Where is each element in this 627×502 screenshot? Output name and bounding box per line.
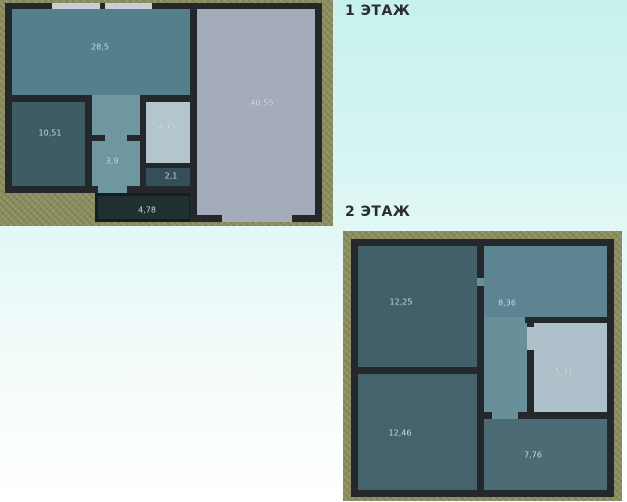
wall [527,350,534,412]
floor1-garage-door-opening [222,215,292,222]
floor2-room-7-76 [484,419,607,490]
window [52,3,100,9]
floor1-room-10-51 [12,102,85,186]
floor1-room-28-5 [12,9,190,95]
floor2-doorway [527,327,534,350]
floor2-room-12-46 [358,374,477,490]
door-jamb [92,135,105,141]
wall [140,95,146,190]
wall [85,95,92,193]
area-label: 10,51 [39,129,62,138]
floor1-room-3-9 [92,95,140,190]
area-label: 12,46 [389,429,412,438]
wall [351,490,614,497]
wall [292,215,322,222]
wall [190,3,197,222]
floor2-plan: 12,25 8,36 5,31 12,46 7,76 [343,231,622,501]
floor2-doorway [492,412,518,419]
floor2-room-12-25 [358,246,477,367]
area-label: 8,36 [498,299,516,308]
area-label: 5,31 [555,368,573,377]
wall [5,3,12,193]
floor1-porch-doorway [98,186,127,193]
wall [351,367,484,374]
floor1-room-4-75 [146,102,190,163]
wall [12,95,92,102]
door-jamb [127,135,140,141]
wall [525,317,607,323]
wall [140,95,190,102]
floor1-title: 1 ЭТАЖ [345,3,410,19]
background: 1 ЭТАЖ 2 ЭТАЖ 28,5 10,51 3,9 [0,0,627,502]
floor1-plan: 28,5 10,51 3,9 4,75 2,1 4,78 40,55 [0,0,333,226]
wall [315,3,322,222]
area-label: 3,9 [106,157,119,166]
area-label: 40,55 [251,99,274,108]
wall [607,239,614,497]
floor2-title: 2 ЭТАЖ [345,204,410,220]
window [105,3,152,9]
floor2-doorway [477,278,484,286]
area-label: 2,1 [165,172,178,181]
wall [351,239,614,246]
wall [140,163,190,168]
area-label: 7,76 [524,451,542,460]
floor2-hall-corridor [484,317,527,412]
area-label: 4,78 [138,206,156,215]
floor1-room-40-55 [197,9,315,215]
area-label: 12,25 [390,298,413,307]
wall [527,317,534,327]
wall [190,215,222,222]
area-label: 4,75 [158,123,176,132]
area-label: 28,5 [91,43,109,52]
